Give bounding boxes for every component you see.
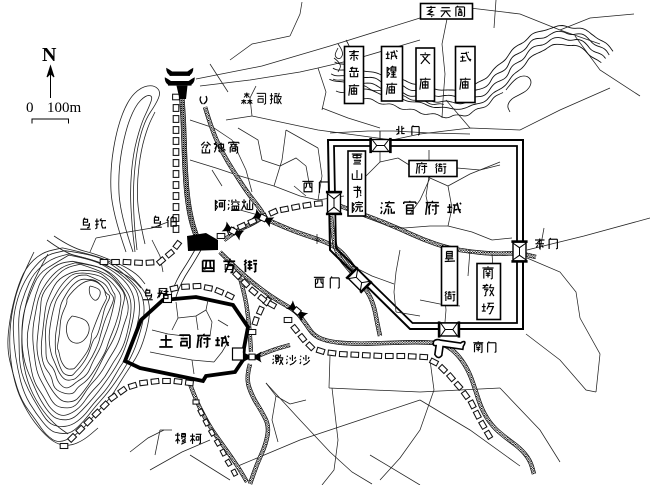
svg-text:0: 0 bbox=[26, 100, 34, 116]
svg-text:N: N bbox=[42, 44, 57, 66]
svg-text:100m: 100m bbox=[47, 100, 82, 116]
